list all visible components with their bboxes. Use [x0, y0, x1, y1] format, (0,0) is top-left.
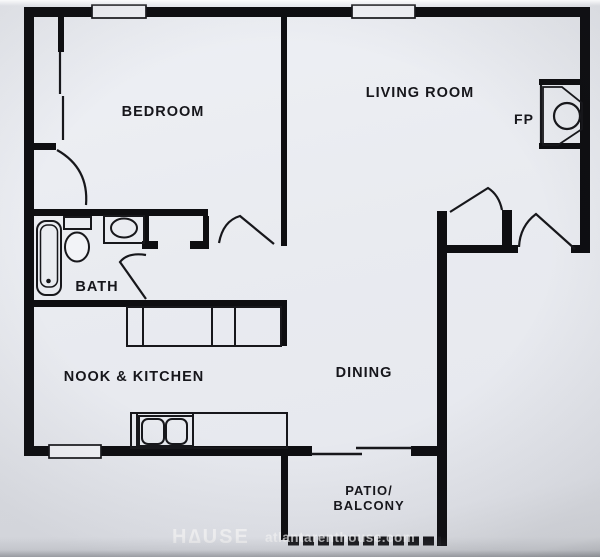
living-dining-door: [450, 188, 502, 212]
sliding-doors: [60, 52, 412, 454]
bathtub-icon: [37, 221, 61, 295]
bedroom-door: [219, 216, 274, 244]
floor-plan-photo: BEDROOM LIVING ROOM FP BATH NOOK & KITCH…: [0, 0, 600, 557]
room-label-living-room: LIVING ROOM: [366, 85, 474, 101]
entry-door: [519, 214, 575, 249]
wall-dining-patio-right: [437, 211, 447, 546]
bedroom-window: [92, 5, 146, 18]
wall-bath-kitchen: [28, 300, 287, 307]
bath-door: [120, 254, 146, 299]
bathroom-sink-icon: [104, 216, 144, 243]
room-label-dining: DINING: [336, 365, 393, 381]
kitchen-counter-upper: [127, 307, 281, 346]
room-label-nook-kitchen: NOOK & KITCHEN: [64, 369, 204, 385]
swing-doors: [57, 150, 575, 299]
kitchen-double-sink-icon: [139, 416, 193, 446]
floor-plan-drawing: BEDROOM LIVING ROOM FP BATH NOOK & KITCH…: [0, 0, 600, 557]
room-label-patio-line1: PATIO/: [345, 483, 392, 498]
living-room-window: [352, 5, 415, 18]
wall-patio-left: [281, 456, 288, 540]
wall-left: [24, 7, 34, 455]
room-label-bedroom: BEDROOM: [122, 104, 205, 120]
wall-closet: [58, 17, 64, 52]
bedroom-closet-door: [57, 150, 86, 205]
kitchen-window: [49, 445, 101, 458]
wall-living-door-jamb: [502, 210, 512, 250]
room-label-patio-line2: BALCONY: [333, 498, 404, 513]
room-label-bath: BATH: [75, 279, 118, 295]
wall-hall-stub-east: [190, 241, 209, 249]
wall-bedroom-living-divider: [281, 12, 287, 246]
wall-closet-bottom: [34, 143, 56, 150]
toilet-icon: [64, 217, 91, 262]
exterior-walls: [24, 7, 590, 546]
wall-hall-jamb: [203, 216, 209, 242]
room-label-fireplace: FP: [514, 111, 534, 127]
wall-bedroom-south: [28, 209, 208, 216]
